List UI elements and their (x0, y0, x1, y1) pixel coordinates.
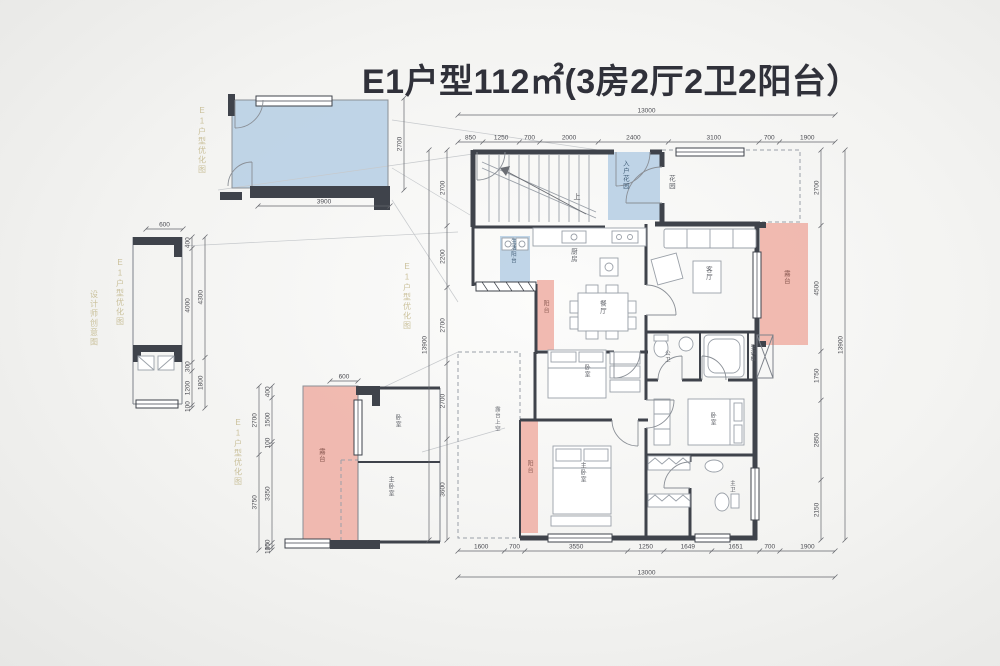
label-detail-bedroom: 卧室 (394, 414, 400, 428)
dim-value: 850 (465, 135, 476, 142)
dim-value: 700 (509, 544, 520, 551)
dim-chain-detail-a-bottom: 3900 (256, 199, 393, 209)
dim-chain-main-bottom: 160070035501250164916517001900 (456, 544, 838, 554)
dim-chain-main-right: 27004500175028502150 (814, 148, 824, 543)
label-ac-board: 空调板 (749, 344, 754, 362)
dim-value: 400 (265, 386, 272, 397)
dim-chain-detail-c-inner: 40015001003350150100 (265, 384, 275, 554)
label-stairs-up: 上 (574, 194, 581, 201)
detail-c-terrace-area (303, 386, 358, 547)
dim-value: 1900 (800, 544, 815, 551)
dim-value: 700 (764, 544, 775, 551)
balcony-1-area (537, 280, 554, 350)
dim-value: 100 (185, 401, 192, 412)
staircase (482, 154, 596, 222)
label-terrace-void: 露台上空 (493, 406, 499, 432)
dim-value: 13000 (637, 108, 655, 115)
dim-value: 1649 (681, 544, 696, 551)
dim-value: 1800 (198, 375, 205, 390)
dim-value: 400 (185, 237, 192, 248)
dim-value: 1500 (265, 412, 272, 427)
dim-value: 3600 (440, 482, 447, 497)
dim-value: 300 (185, 361, 192, 372)
dim-value: 1600 (474, 544, 489, 551)
dim-value: 3900 (317, 199, 332, 206)
label-kitchen: 厨房 (569, 248, 576, 263)
label-bedroom-2: 卧室 (583, 364, 589, 378)
dim-value: 100 (265, 437, 272, 448)
dim-chain-detail-b-top: 600 (144, 222, 186, 232)
floorplan-drawing: 8501250700200024003100700190013000160070… (0, 0, 1000, 666)
dim-value: 2700 (440, 318, 447, 333)
dim-value: 2700 (440, 180, 447, 195)
dim-value: 2850 (814, 432, 821, 447)
label-balcony-2: 阳台 (526, 460, 532, 474)
dim-value: 3550 (569, 544, 584, 551)
dim-value: 1750 (814, 368, 821, 383)
label-living: 客厅 (704, 266, 711, 281)
dim-value: 100 (265, 543, 272, 554)
dim-value: 2700 (814, 180, 821, 195)
label-detail-master: 主卧室 (387, 476, 393, 497)
dim-value: 13000 (637, 570, 655, 577)
dim-value: 4300 (198, 290, 205, 305)
dim-chain-main-top-total: 13000 (456, 108, 838, 118)
furniture-layer (502, 228, 756, 526)
dim-value: 2400 (626, 135, 641, 142)
dim-value: 3100 (706, 135, 721, 142)
dim-chain-detail-b-inner: 40040003001200100 (185, 235, 195, 413)
dim-chain-main-top: 85012507002000240031007001900 (456, 135, 838, 145)
dim-value: 1651 (728, 544, 743, 551)
dim-value: 2200 (440, 249, 447, 264)
detail-b (133, 237, 182, 408)
dim-value: 2700 (440, 394, 447, 409)
dim-value: 1900 (800, 135, 815, 142)
label-service-balcony: 生活阳台 (509, 238, 515, 264)
dim-chain-main-right-total: 13900 (838, 148, 848, 543)
terrace-void-outline (458, 352, 520, 538)
label-dining: 餐厅 (598, 300, 605, 315)
watermark-2: E1户型优化图 (115, 258, 126, 327)
dim-value: 13900 (422, 336, 429, 354)
dim-value: 1250 (639, 544, 654, 551)
dim-chain-main-left-total: 13900 (422, 148, 432, 543)
dim-value: 13900 (838, 336, 845, 354)
dim-value: 600 (159, 222, 170, 229)
label-bath-public: 公卫 (663, 350, 669, 363)
watermark-4: E1户型优化图 (233, 418, 244, 487)
balcony-2-area (521, 421, 538, 533)
watermark-3: 设计师创意图 (89, 290, 100, 347)
dim-chain-detail-b-outer: 43001800 (198, 235, 208, 411)
dim-chain-detail-c-top: 600 (328, 374, 361, 384)
floorplan-canvas: E1户型112㎡(3房2厅2卫2阳台） (0, 0, 1000, 666)
dim-value: 3350 (265, 486, 272, 501)
dim-value: 2700 (397, 136, 404, 151)
label-master-bedroom: 主卧室 (579, 462, 585, 483)
label-balcony-1: 阳台 (542, 300, 548, 314)
label-garden: 花园 (667, 175, 674, 190)
dim-value: 4000 (185, 298, 192, 313)
dim-value: 2700 (252, 413, 259, 428)
dim-value: 4500 (814, 281, 821, 296)
detail-a-room-area (232, 100, 388, 188)
dim-value: 3750 (252, 495, 259, 510)
dim-value: 2150 (814, 502, 821, 517)
dim-value: 2000 (562, 135, 577, 142)
watermark-5: E1户型优化图 (402, 262, 413, 331)
label-terrace: 露台 (782, 270, 789, 285)
dim-chain-main-left: 27002200270027003600 (440, 148, 450, 543)
dim-chain-detail-a-right: 2700 (397, 96, 407, 193)
dim-chain-detail-c-outer: 27003750 (252, 384, 262, 553)
label-detail-terrace: 露台 (317, 448, 324, 463)
dim-value: 700 (524, 135, 535, 142)
dim-chain-main-bottom-total: 13000 (456, 570, 838, 580)
label-bedroom-3: 卧室 (709, 412, 715, 426)
dim-value: 600 (339, 374, 350, 381)
dim-value: 1200 (185, 380, 192, 395)
label-bath-master: 主卫 (728, 480, 734, 493)
watermark-1: E1户型优化图 (197, 106, 208, 175)
dim-value: 1250 (494, 135, 509, 142)
dim-value: 700 (764, 135, 775, 142)
label-entry-garden: 入户花园 (621, 160, 628, 190)
